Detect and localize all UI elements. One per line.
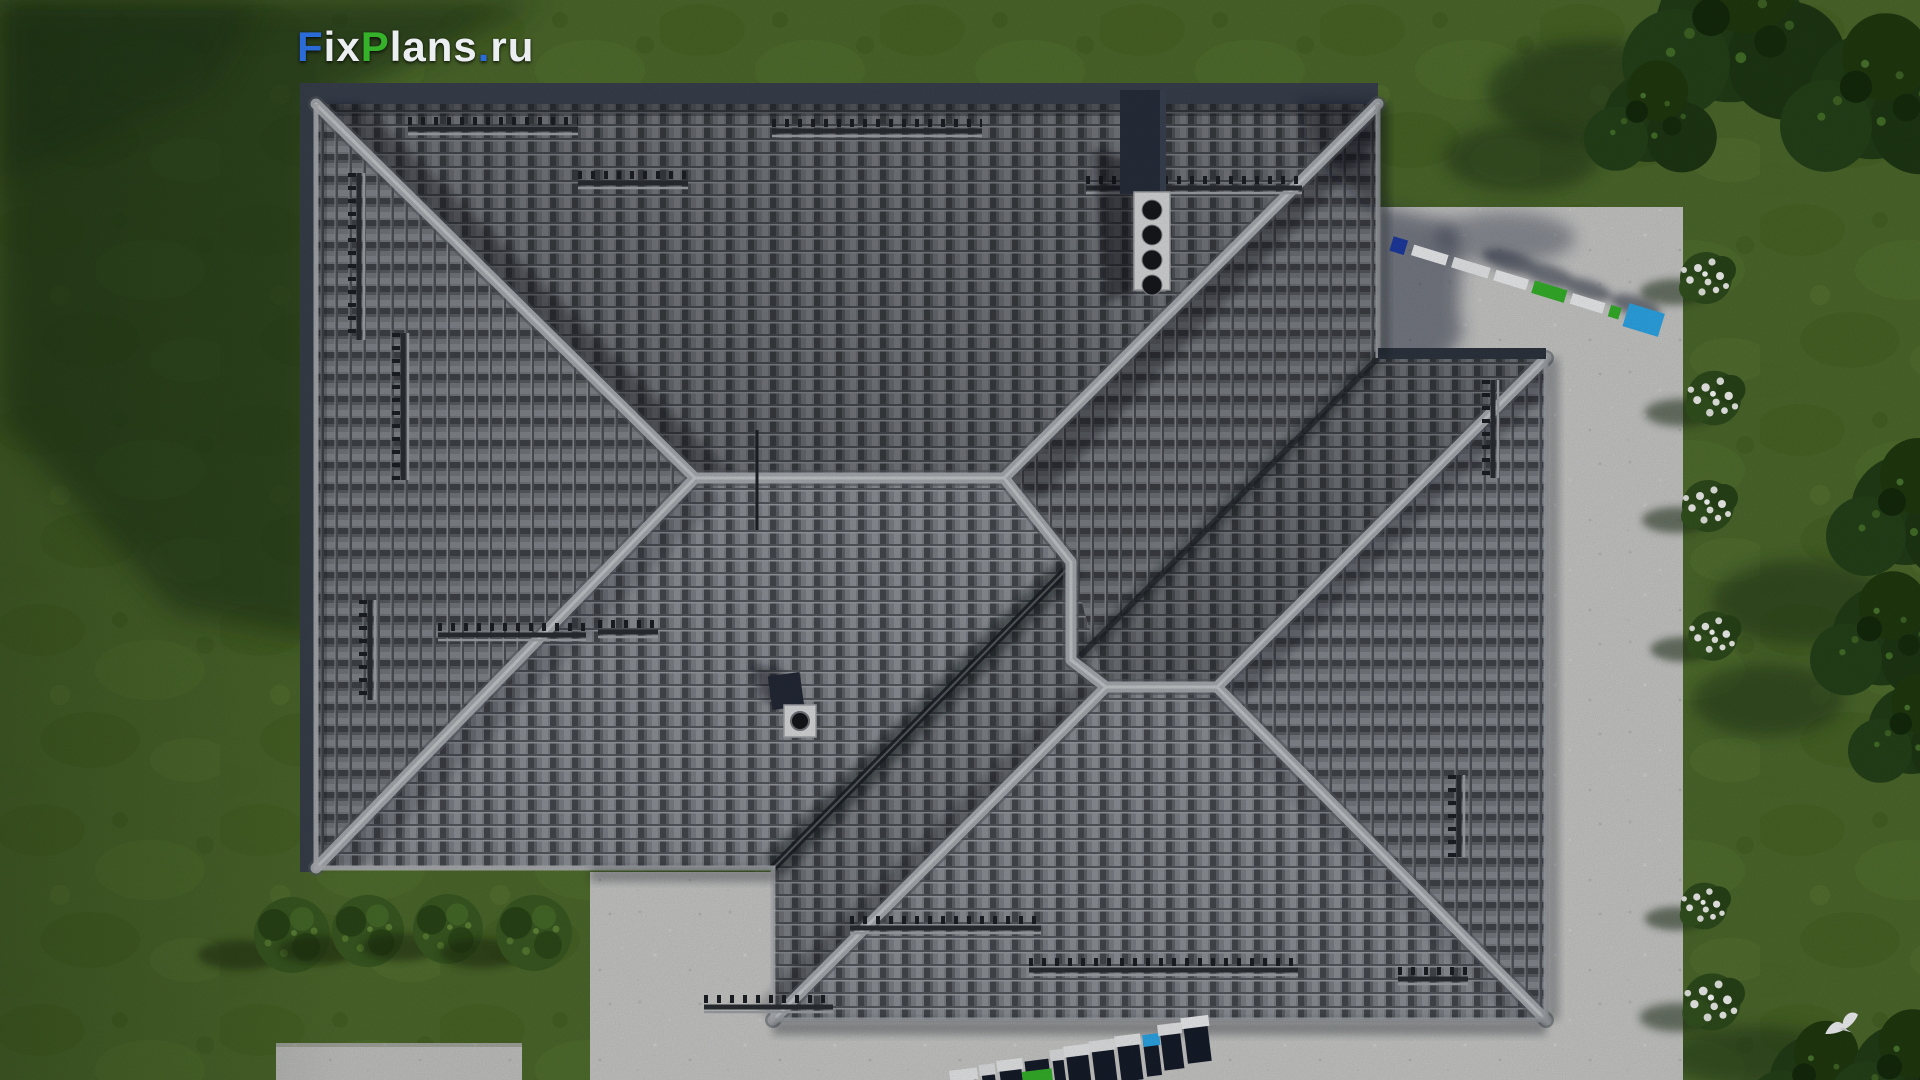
logo-segment: . xyxy=(478,23,491,70)
logo-segment: ix xyxy=(324,23,361,70)
logo-segment: F xyxy=(297,23,324,70)
render-canvas: FixPlans.ru xyxy=(0,0,1920,1080)
logo-segment: lans xyxy=(390,23,478,70)
lawn-vignette xyxy=(0,0,1920,1080)
logo-segment: ru xyxy=(490,23,534,70)
site-logo: FixPlans.ru xyxy=(297,26,534,68)
scene-svg xyxy=(0,0,1920,1080)
logo-segment: P xyxy=(361,23,390,70)
